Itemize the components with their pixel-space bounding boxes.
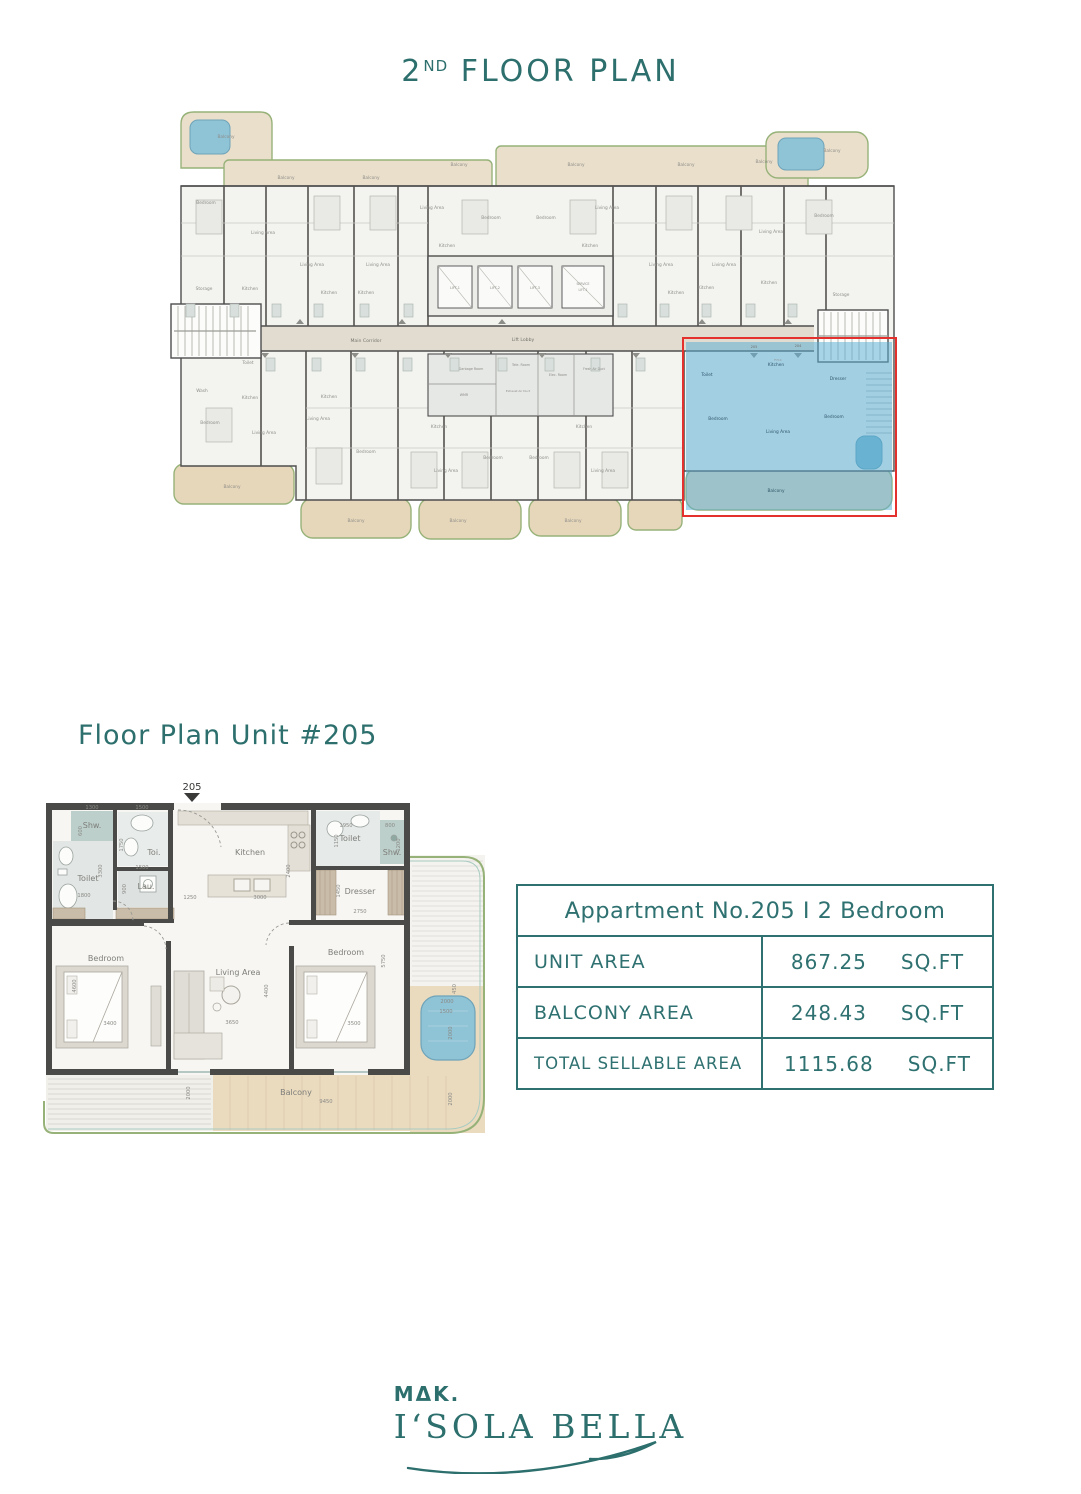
svg-text:Kitchen: Kitchen: [321, 394, 337, 400]
svg-text:Balcony: Balcony: [347, 518, 364, 524]
floor-title-number: 2: [401, 54, 423, 89]
svg-text:Balcony: Balcony: [449, 518, 466, 524]
svg-text:Balcony: Balcony: [280, 1088, 312, 1097]
brochure-page: 2ND FLOOR PLAN: [0, 0, 1081, 1494]
svg-text:Toilet: Toilet: [77, 874, 99, 883]
svg-text:Dresser: Dresser: [345, 887, 376, 896]
svg-text:Tele. Room: Tele. Room: [511, 363, 530, 367]
building-floor-plan: BalconyBalconyBalconyBalconyBalconyBalco…: [166, 108, 914, 548]
row-value-total-area: 1115.68 SQ.FT: [763, 1039, 992, 1088]
svg-text:Lift Lobby: Lift Lobby: [512, 337, 535, 343]
pool-top-right: [778, 138, 824, 170]
svg-text:Living Area: Living Area: [420, 205, 444, 211]
svg-text:WMR: WMR: [460, 393, 469, 397]
svg-text:Balcony: Balcony: [362, 175, 379, 181]
svg-text:Bedroom: Bedroom: [824, 414, 843, 420]
svg-text:2000: 2000: [440, 999, 453, 1005]
svg-text:1500: 1500: [135, 805, 148, 811]
svg-text:Lau.: Lau.: [138, 882, 155, 891]
svg-text:Living Area: Living Area: [366, 262, 390, 268]
svg-text:Bedroom: Bedroom: [328, 948, 364, 957]
svg-text:Living Area: Living Area: [649, 262, 673, 268]
svg-text:1250: 1250: [183, 895, 196, 901]
balcony-area-unit: SQ.FT: [901, 1001, 964, 1025]
svg-text:Living Area: Living Area: [252, 430, 276, 436]
svg-text:2750: 2750: [353, 909, 366, 915]
table-header: Appartment No.205 I 2 Bedroom: [518, 886, 992, 937]
svg-text:1750: 1750: [119, 838, 125, 851]
svg-text:Kitchen: Kitchen: [358, 290, 374, 296]
svg-text:1300: 1300: [85, 805, 98, 811]
svg-text:Balcony: Balcony: [767, 488, 784, 494]
svg-text:Balcony: Balcony: [277, 175, 294, 181]
svg-text:Kitchen: Kitchen: [698, 285, 714, 291]
svg-text:900: 900: [122, 884, 128, 894]
brand-name: I‘SOLA BELLA: [394, 1407, 687, 1446]
svg-text:2000: 2000: [448, 1026, 454, 1039]
svg-text:Elec. Room: Elec. Room: [549, 373, 567, 377]
bed-right: [296, 966, 375, 1048]
row-label-total-area: TOTAL SELLABLE AREA: [518, 1039, 763, 1088]
svg-text:LIFT-3: LIFT-3: [530, 286, 540, 290]
svg-text:Kitchen: Kitchen: [235, 848, 265, 857]
svg-text:Balcony: Balcony: [755, 159, 772, 165]
svg-text:Bedroom: Bedroom: [483, 455, 502, 461]
svg-text:Wash: Wash: [196, 388, 208, 394]
svg-text:Living Area: Living Area: [591, 468, 615, 474]
svg-text:Bedroom: Bedroom: [529, 455, 548, 461]
svg-text:Living Area: Living Area: [759, 229, 783, 235]
svg-text:SERVICE: SERVICE: [576, 282, 589, 286]
svg-text:Living Area: Living Area: [712, 262, 736, 268]
svg-text:Main Corridor: Main Corridor: [350, 338, 381, 344]
floor-title-text: FLOOR PLAN: [448, 54, 680, 89]
floor-plan-title: 2ND FLOOR PLAN: [0, 54, 1081, 89]
svg-text:Fresh Air Duct: Fresh Air Duct: [583, 367, 605, 371]
svg-text:800: 800: [385, 823, 395, 829]
svg-text:Living Area: Living Area: [216, 968, 261, 977]
row-label-unit-area: UNIT AREA: [518, 937, 763, 988]
svg-text:Kitchen: Kitchen: [242, 286, 258, 292]
floor-title-ordinal: ND: [423, 57, 448, 75]
svg-text:Balcony: Balcony: [567, 162, 584, 168]
svg-text:Shw.: Shw.: [83, 821, 102, 830]
balcony-wood-deck: [213, 1075, 485, 1131]
svg-text:204: 204: [795, 344, 803, 348]
svg-text:Kitchen: Kitchen: [576, 424, 592, 430]
svg-text:Bedroom: Bedroom: [708, 416, 727, 422]
svg-text:Bedroom: Bedroom: [481, 215, 500, 221]
svg-text:Toi.: Toi.: [146, 848, 160, 857]
svg-text:Living Area: Living Area: [300, 262, 324, 268]
unit-205-floor-plan: 205: [38, 781, 513, 1146]
svg-text:205: 205: [751, 345, 758, 349]
row-value-balcony-area: 248.43 SQ.FT: [763, 988, 992, 1039]
svg-text:Storage: Storage: [196, 286, 213, 292]
svg-text:1800: 1800: [77, 893, 90, 899]
svg-text:Kitchen: Kitchen: [439, 243, 455, 249]
highlighted-unit-205-overlay[interactable]: [686, 342, 892, 510]
svg-text:Toilet: Toilet: [339, 834, 361, 843]
unit-area-value: 867.25: [791, 950, 867, 974]
svg-text:Kitchen: Kitchen: [242, 395, 258, 401]
total-area-value: 1115.68: [784, 1052, 874, 1076]
unit-area-unit: SQ.FT: [901, 950, 964, 974]
svg-text:LIFT-2: LIFT-2: [490, 286, 500, 290]
svg-text:1150: 1150: [334, 834, 340, 847]
svg-text:Toilet: Toilet: [241, 360, 254, 366]
svg-text:Kitchen: Kitchen: [761, 280, 777, 286]
balcony-area-value: 248.43: [791, 1001, 867, 1025]
row-label-balcony-area: BALCONY AREA: [518, 988, 763, 1039]
svg-text:Bedroom: Bedroom: [200, 420, 219, 426]
svg-text:2400: 2400: [286, 864, 292, 877]
svg-text:Toilet: Toilet: [700, 372, 713, 378]
svg-text:F.H.C: F.H.C: [774, 358, 781, 362]
balcony-left-deck: [46, 1075, 213, 1131]
svg-text:3500: 3500: [347, 1021, 360, 1027]
unit-entry-number: 205: [182, 782, 201, 793]
svg-text:Kitchen: Kitchen: [768, 362, 784, 368]
svg-text:Bedroom: Bedroom: [88, 954, 124, 963]
svg-text:1200: 1200: [396, 838, 402, 851]
svg-text:1500: 1500: [439, 1009, 452, 1015]
svg-text:2000: 2000: [186, 1086, 192, 1099]
svg-text:Balcony: Balcony: [564, 518, 581, 524]
svg-text:3400: 3400: [103, 1021, 116, 1027]
svg-text:2000: 2000: [448, 1092, 454, 1105]
apartment-area-table: Appartment No.205 I 2 Bedroom UNIT AREA …: [516, 884, 994, 1090]
svg-text:3300: 3300: [98, 864, 104, 877]
svg-text:Bedroom: Bedroom: [356, 449, 375, 455]
unit-entry-arrow: [184, 793, 200, 802]
svg-text:Living Area: Living Area: [766, 429, 790, 435]
svg-text:4600: 4600: [72, 979, 78, 992]
svg-text:Kitchen: Kitchen: [321, 290, 337, 296]
svg-text:LIFT-1: LIFT-1: [450, 286, 460, 290]
svg-text:4400: 4400: [264, 984, 270, 997]
svg-text:Living Area: Living Area: [306, 416, 330, 422]
svg-text:Balcony: Balcony: [450, 162, 467, 168]
svg-text:Storage: Storage: [833, 292, 850, 298]
unit-section-title: Floor Plan Unit #205: [78, 720, 377, 751]
svg-text:Balcony: Balcony: [677, 162, 694, 168]
svg-text:Exhaust Air Duct: Exhaust Air Duct: [506, 389, 531, 393]
svg-text:3650: 3650: [225, 1020, 238, 1026]
svg-text:1950: 1950: [339, 823, 352, 829]
total-area-unit: SQ.FT: [908, 1052, 971, 1076]
svg-text:1450: 1450: [336, 884, 342, 897]
brand-mark: MΔK.: [394, 1382, 687, 1406]
svg-text:Kitchen: Kitchen: [431, 424, 447, 430]
svg-text:Bedroom: Bedroom: [814, 213, 833, 219]
svg-text:Kitchen: Kitchen: [582, 243, 598, 249]
svg-text:Living Area: Living Area: [434, 468, 458, 474]
svg-text:9450: 9450: [319, 1099, 332, 1105]
brand-logo-box: MΔK. I‘SOLA BELLA: [394, 1382, 687, 1474]
svg-text:Bedroom: Bedroom: [536, 215, 555, 221]
svg-text:LIFT-1: LIFT-1: [578, 288, 587, 292]
bed-left: [56, 966, 128, 1048]
brand-logo: MΔK. I‘SOLA BELLA: [0, 1382, 1081, 1474]
svg-text:3000: 3000: [253, 895, 266, 901]
svg-text:Dresser: Dresser: [830, 376, 847, 382]
svg-text:Living Area: Living Area: [251, 230, 275, 236]
row-value-unit-area: 867.25 SQ.FT: [763, 937, 992, 988]
svg-text:5750: 5750: [381, 954, 387, 967]
svg-text:Balcony: Balcony: [823, 148, 840, 154]
stairwell-left: [171, 304, 261, 358]
svg-text:1500: 1500: [135, 865, 148, 871]
svg-text:Kitchen: Kitchen: [668, 290, 684, 296]
svg-text:Living Area: Living Area: [595, 205, 619, 211]
svg-text:Balcony: Balcony: [217, 134, 234, 140]
svg-text:450: 450: [452, 984, 458, 994]
svg-text:Bedroom: Bedroom: [196, 200, 215, 206]
svg-text:Balcony: Balcony: [223, 484, 240, 490]
svg-text:Garbage Room: Garbage Room: [459, 367, 484, 371]
svg-text:600: 600: [78, 826, 84, 836]
